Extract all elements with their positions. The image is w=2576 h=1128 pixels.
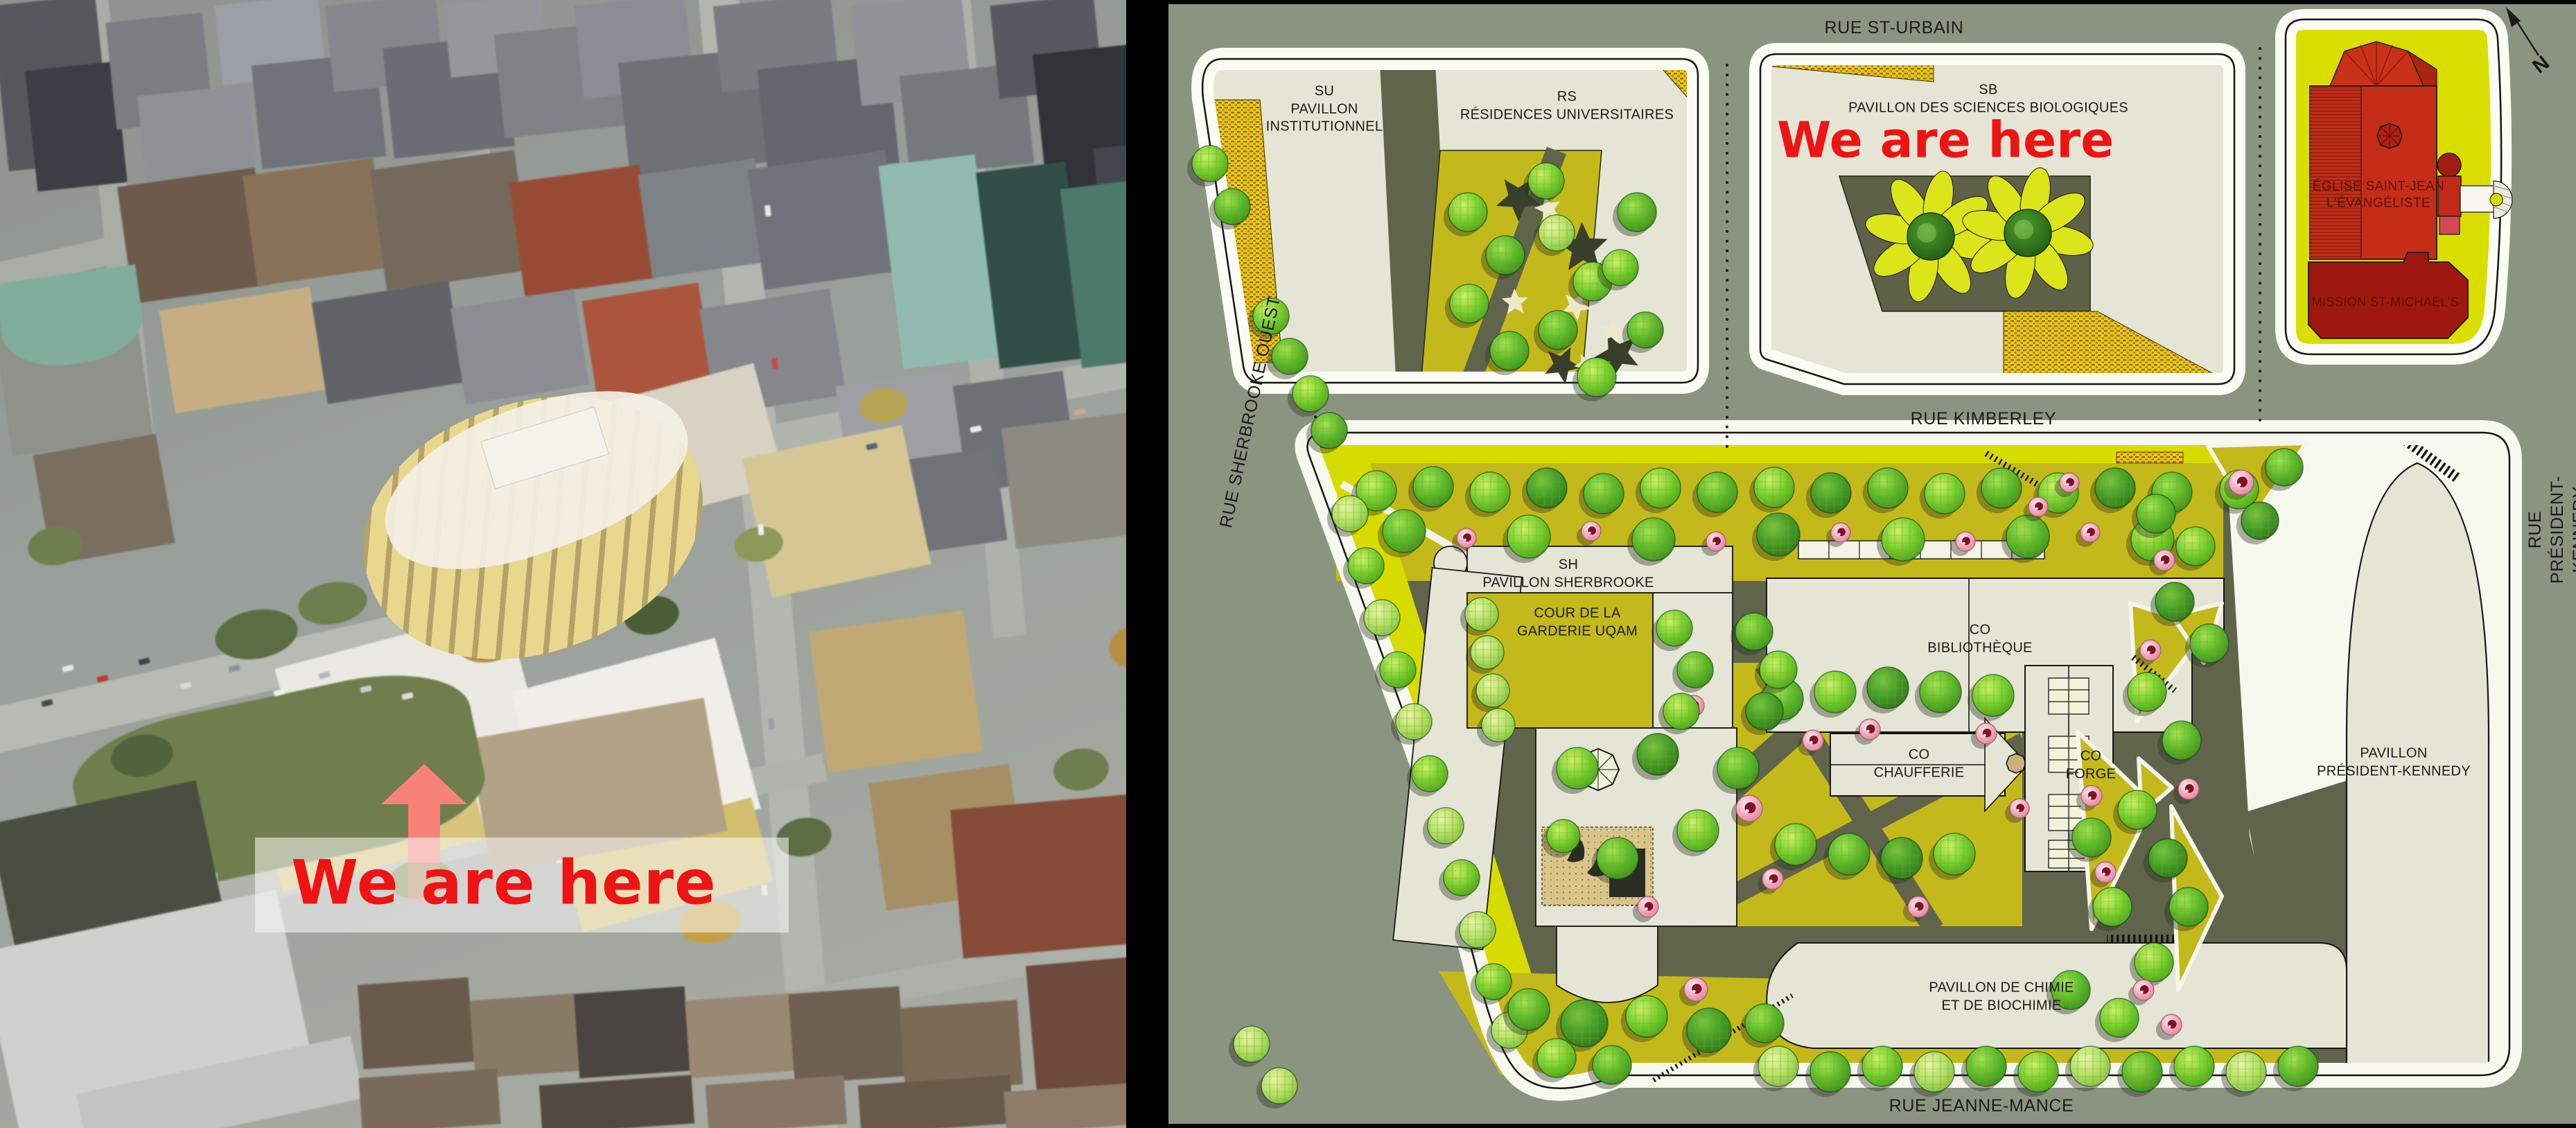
we-are-here-map-label: We are here (1777, 112, 2114, 169)
tree-icon (1256, 1068, 1297, 1109)
site-plan-graphic (1168, 4, 2576, 1124)
street-label-president-kennedy: RUE PRÉSIDENT-KENNEDY (2524, 476, 2576, 584)
photo-building-block (858, 1075, 1013, 1128)
north-arrow-icon (2506, 7, 2539, 55)
label-residences-universitaires: RS RÉSIDENCES UNIVERSITAIRES (1460, 88, 1674, 123)
car-icon (138, 657, 150, 665)
photo-building-block (243, 158, 388, 286)
photo-building-block (358, 978, 474, 1070)
label-eglise: ÉGLISE SAINT-JEAN L'ÉVANGÉLISTE (2313, 179, 2445, 213)
campus-map: RUE ST-URBAIN RUE KIMBERLEY RUE SHERBROO… (1168, 4, 2576, 1124)
photo-building-block (809, 610, 983, 772)
photo-building-block (706, 1075, 847, 1128)
photo-building-block (358, 1068, 500, 1128)
car-icon (1074, 408, 1085, 416)
car-icon (768, 718, 774, 730)
photo-building-block (539, 1075, 694, 1128)
photo-building-block (1106, 620, 1126, 673)
we-are-here-banner: We are here (255, 838, 789, 932)
photo-building-block (295, 577, 371, 630)
photo-building-block (450, 289, 589, 404)
photo-building-block (574, 987, 690, 1079)
car-icon (62, 664, 73, 672)
we-are-here-photo-label: We are here (291, 847, 717, 918)
photo-building-block (950, 792, 1126, 959)
street-label-kimberley: RUE KIMBERLEY (1911, 408, 2057, 430)
photo-building-block (370, 150, 531, 290)
photo-building-block (1051, 745, 1112, 795)
car-icon (771, 358, 778, 370)
photo-building-block (312, 281, 465, 404)
car-icon (757, 524, 764, 536)
composite-screenshot: We are here (0, 0, 2576, 1128)
tree-icon (1229, 1026, 1270, 1067)
bench-icon (2117, 452, 2183, 463)
photo-building-block (159, 287, 326, 414)
photo-building-block (685, 993, 794, 1078)
label-mission: MISSION ST-MICHAEL'S (2312, 294, 2459, 310)
photo-building-block (1001, 411, 1126, 548)
we-are-here-arrow-icon (381, 764, 467, 804)
aerial-photo: We are here (0, 0, 1126, 1128)
photo-building-block (509, 165, 655, 297)
street-label-st-urbain: RUE ST-URBAIN (1825, 17, 1964, 39)
label-chaufferie: CO CHAUFFERIE (1874, 746, 1965, 781)
church-turret-icon (2377, 123, 2402, 148)
label-cour-garderie: COUR DE LA GARDERIE UQAM (1517, 605, 1638, 640)
label-bibliotheque: CO BIBLIOTHÈQUE (1927, 621, 2032, 657)
label-forge: CO FORGE (2066, 747, 2117, 783)
photo-building-block (789, 987, 906, 1084)
photo-building-block (1004, 1082, 1126, 1128)
label-pavillon-sherbrooke: SH PAVILLON SHERBROOKE (1482, 556, 1654, 591)
label-chimie-biochimie: PAVILLON DE CHIMIE ET DE BIOCHIMIE (1929, 979, 2074, 1014)
photo-building-block (470, 993, 579, 1078)
label-pavillon-president-kennedy: PAVILLON PRÉSIDENT-KENNEDY (2317, 745, 2471, 780)
street-label-jeanne-mance: RUE JEANNE-MANCE (1889, 1095, 2074, 1117)
car-icon (764, 205, 771, 217)
label-pavillon-institutionnel: SU PAVILLON INSTITUTIONNEL (1266, 83, 1383, 137)
